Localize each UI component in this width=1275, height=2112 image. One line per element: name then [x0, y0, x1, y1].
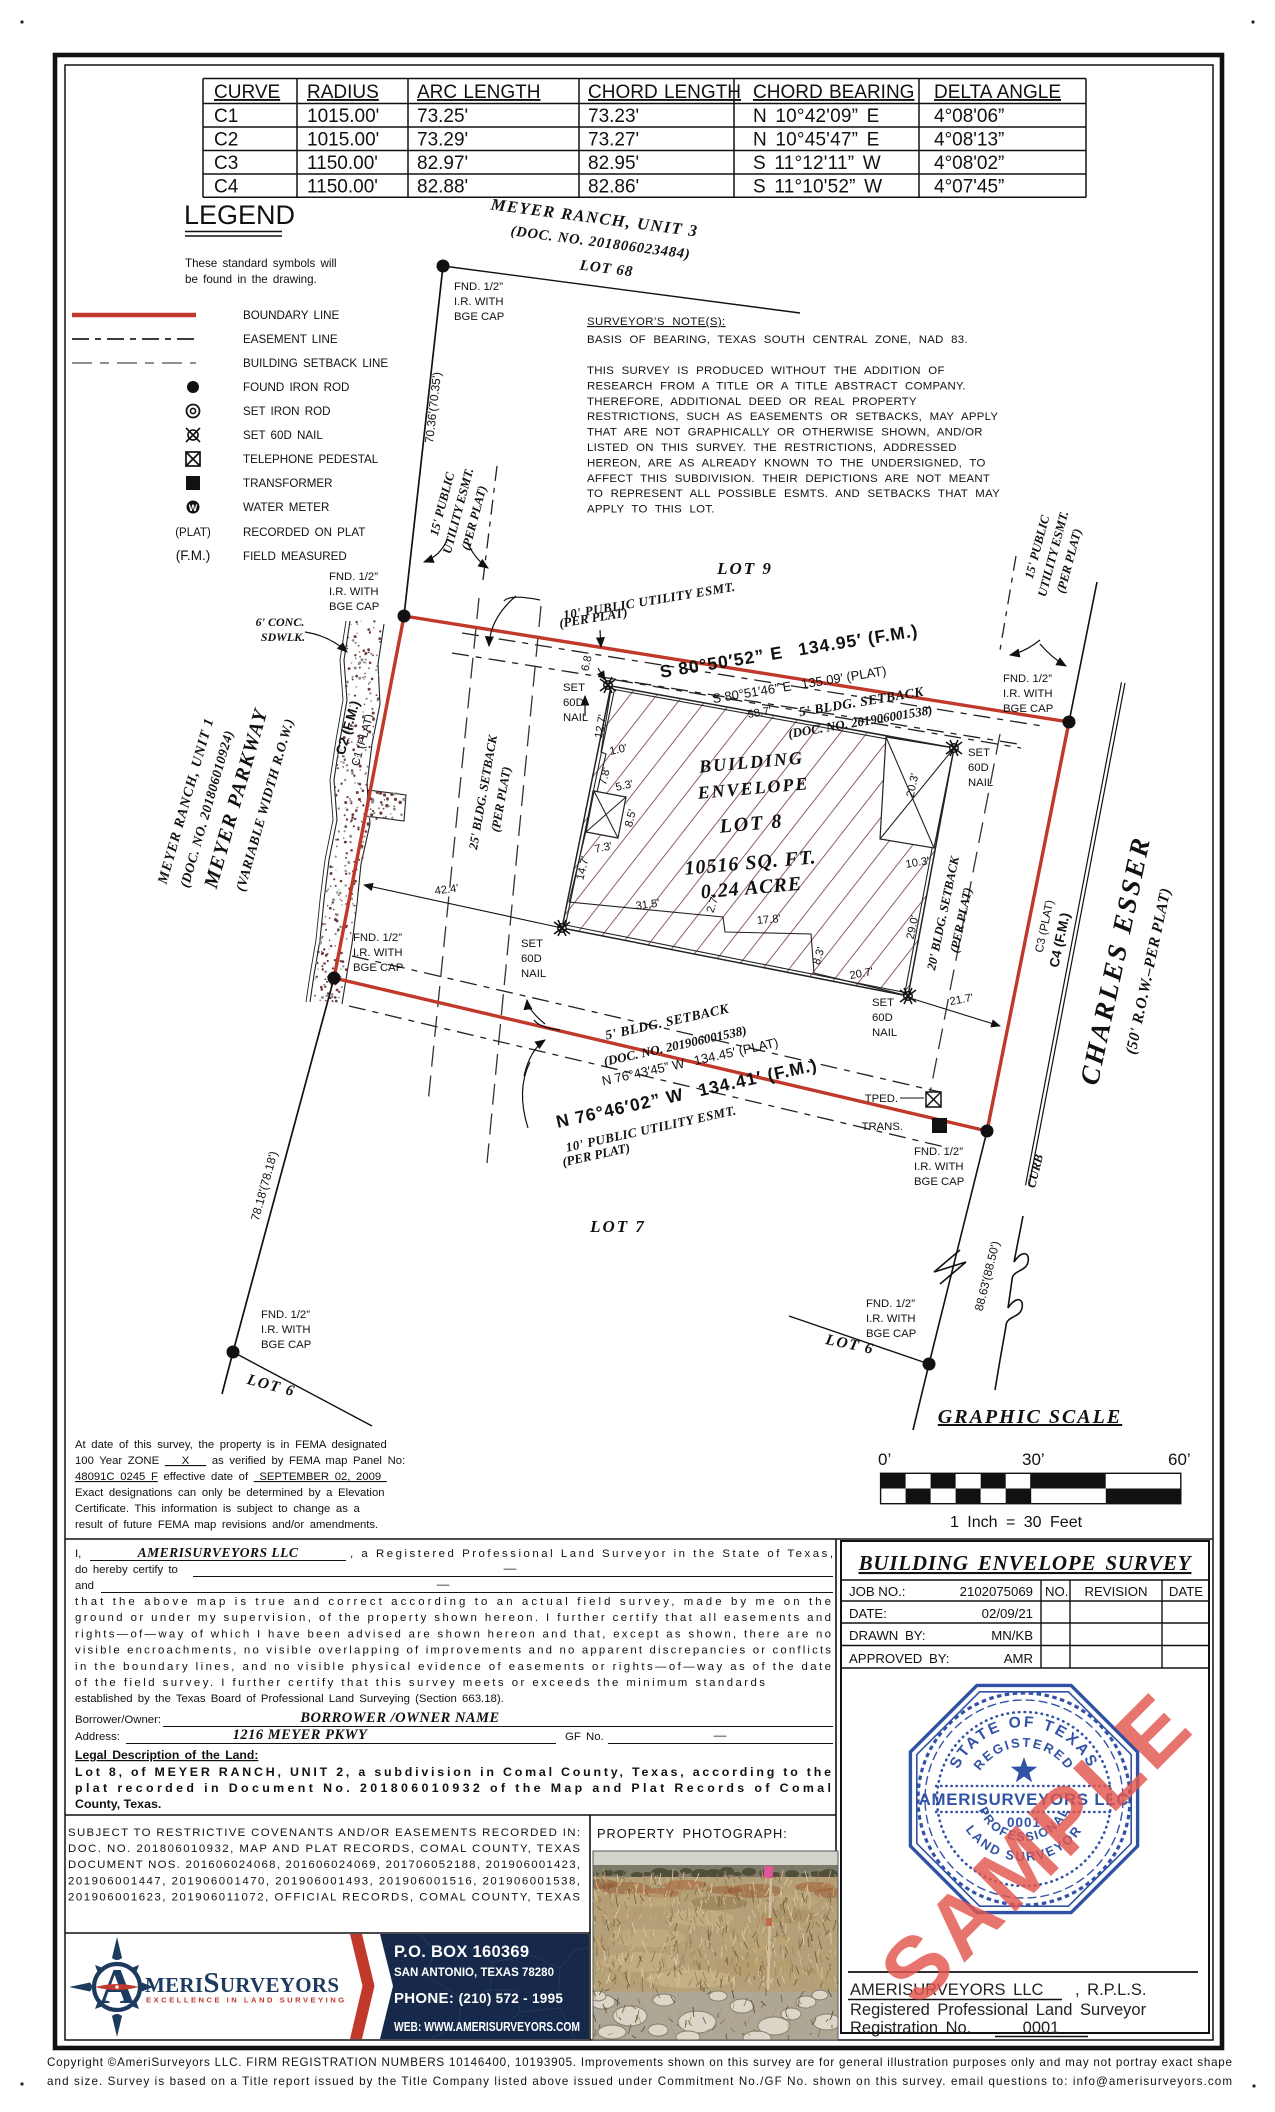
svg-text:I.R. WITH: I.R. WITH [261, 1324, 311, 1336]
svg-text:TELEPHONE PEDESTAL: TELEPHONE PEDESTAL [243, 453, 379, 466]
svg-text:1150.00': 1150.00' [307, 153, 378, 174]
svg-text:0’: 0’ [878, 1450, 891, 1469]
svg-text:plat recorded in Document No.: plat recorded in Document No. 2018060109… [75, 1781, 831, 1795]
svg-text:BUILDING SETBACK LINE: BUILDING SETBACK LINE [243, 357, 388, 370]
svg-text:BGE CAP: BGE CAP [866, 1328, 916, 1340]
svg-text:201906001623, 201906011072, OF: 201906001623, 201906011072, OFFICIAL REC… [68, 1891, 580, 1903]
svg-text:NAIL: NAIL [872, 1027, 897, 1039]
svg-text:DATE:: DATE: [849, 1606, 887, 1621]
svg-text:and: and [75, 1580, 94, 1592]
svg-text:I.R. WITH: I.R. WITH [353, 947, 403, 959]
svg-text:Legal Description of the Land:: Legal Description of the Land: [75, 1748, 258, 1762]
svg-text:N 10°45'47” E: N 10°45'47” E [753, 130, 880, 151]
svg-text:I.R. WITH: I.R. WITH [866, 1313, 916, 1325]
svg-text:SET: SET [872, 997, 894, 1009]
svg-text:1150.00': 1150.00' [307, 177, 378, 198]
svg-text:CHORD BEARING: CHORD BEARING [753, 82, 914, 103]
svg-text:ARC LENGTH: ARC LENGTH [417, 82, 540, 103]
svg-text:BGE CAP: BGE CAP [329, 601, 379, 613]
svg-text:County, Texas.: County, Texas. [75, 1797, 161, 1811]
svg-text:FND. 1/2”: FND. 1/2” [1003, 673, 1052, 685]
svg-text:MN/KB: MN/KB [991, 1628, 1033, 1643]
svg-text:TRANSFORMER: TRANSFORMER [243, 477, 333, 490]
svg-text:––: –– [437, 1579, 450, 1591]
svg-text:TPED.: TPED. [865, 1093, 898, 1105]
svg-text:LEGEND: LEGEND [184, 200, 295, 230]
svg-text:EXCELLENCE IN LAND SURVEYING: EXCELLENCE IN LAND SURVEYING [146, 1996, 347, 2005]
svg-text:I.R. WITH: I.R. WITH [1003, 688, 1053, 700]
svg-text:1015.00': 1015.00' [307, 130, 379, 151]
svg-text:NAIL: NAIL [521, 968, 546, 980]
svg-text:SURVEYOR’S NOTE(S):: SURVEYOR’S NOTE(S): [587, 316, 726, 328]
svg-text:established by the Texas Board: established by the Texas Board of Profes… [75, 1693, 504, 1705]
svg-text:C1: C1 [214, 106, 238, 127]
svg-text:W: W [189, 503, 198, 513]
svg-text:60D: 60D [563, 697, 584, 709]
svg-text:Exact designations can only be: Exact designations can only be determine… [75, 1487, 385, 1499]
svg-text:DRAWN BY:: DRAWN BY: [849, 1628, 926, 1643]
svg-text:BGE CAP: BGE CAP [261, 1339, 311, 1351]
svg-text:APPLY TO THIS LOT.: APPLY TO THIS LOT. [587, 504, 715, 516]
svg-text:WATER METER: WATER METER [243, 501, 329, 514]
svg-text:SET: SET [563, 682, 585, 694]
svg-text:THEREFORE, ADDITIONAL DEED OR: THEREFORE, ADDITIONAL DEED OR REAL PROPE… [587, 396, 917, 408]
svg-text:ground or under my supervision: ground or under my supervision, of the p… [75, 1612, 831, 1624]
svg-text:C2: C2 [214, 130, 238, 151]
svg-text:201906001447, 201906001470, 20: 201906001447, 201906001470, 201906001493… [68, 1875, 580, 1887]
svg-text:TO REPRESENT ALL POSSIBLE ESMT: TO REPRESENT ALL POSSIBLE ESMTS. AND SET… [587, 488, 1000, 500]
svg-text:––: –– [714, 1730, 727, 1742]
svg-text:17.8': 17.8' [756, 913, 781, 927]
svg-text:AMR: AMR [1004, 1651, 1033, 1666]
svg-text:S 11°10'52” W: S 11°10'52” W [753, 177, 882, 198]
svg-text:RECORDED ON PLAT: RECORDED ON PLAT [243, 526, 365, 539]
svg-text:visible encroachments, no visi: visible encroachments, no visible overla… [75, 1645, 831, 1657]
svg-text:DOC. NO. 201806010932, MAP AND: DOC. NO. 201806010932, MAP AND PLAT RECO… [68, 1843, 580, 1855]
svg-text:CHORD LENGTH: CHORD LENGTH [588, 82, 741, 103]
svg-text:1 Inch = 30 Feet: 1 Inch = 30 Feet [950, 1514, 1083, 1531]
svg-text:Registered Professional Land S: Registered Professional Land Surveyor [850, 2001, 1147, 2019]
svg-text:02/09/21: 02/09/21 [982, 1606, 1033, 1621]
svg-text:Address:: Address: [75, 1731, 120, 1743]
svg-text:4°08'02”: 4°08'02” [934, 153, 1004, 174]
svg-text:DOCUMENT NOS. 201606024068, 20: DOCUMENT NOS. 201606024068, 201606024069… [68, 1859, 580, 1871]
svg-text:2102075069: 2102075069 [960, 1584, 1033, 1599]
svg-text:Copyright ©AmeriSurveyors LLC.: Copyright ©AmeriSurveyors LLC. FIRM REGI… [47, 2056, 1232, 2069]
svg-text:DATE: DATE [1169, 1584, 1203, 1599]
svg-text:SET: SET [968, 747, 990, 759]
svg-text:SAN ANTONIO, TEXAS 78280: SAN ANTONIO, TEXAS 78280 [394, 1965, 554, 1979]
svg-text:Registration No.: Registration No. [850, 2019, 971, 2037]
svg-text:FND. 1/2”: FND. 1/2” [329, 571, 378, 583]
svg-text:(PLAT): (PLAT) [175, 527, 211, 539]
svg-text:BGE CAP: BGE CAP [1003, 703, 1053, 715]
svg-text:60D: 60D [872, 1012, 893, 1024]
svg-text:FND. 1/2”: FND. 1/2” [454, 281, 503, 293]
svg-text:BORROWER /OWNER NAME: BORROWER /OWNER NAME [299, 1710, 499, 1726]
svg-text:N 10°42'09” E: N 10°42'09” E [753, 106, 880, 127]
svg-text:I.R. WITH: I.R. WITH [454, 296, 504, 308]
svg-text:HEREON, ARE AS ALREADY KNOWN T: HEREON, ARE AS ALREADY KNOWN TO THE UNDE… [587, 457, 986, 469]
svg-text:EASEMENT LINE: EASEMENT LINE [243, 333, 338, 346]
svg-text:82.95': 82.95' [588, 153, 639, 174]
svg-text:BOUNDARY LINE: BOUNDARY LINE [243, 309, 340, 322]
svg-text:73.29': 73.29' [417, 130, 468, 151]
svg-text:82.86': 82.86' [588, 177, 639, 198]
svg-text:FND. 1/2”: FND. 1/2” [914, 1146, 963, 1158]
svg-text:C4: C4 [214, 177, 239, 198]
svg-text:NAIL: NAIL [563, 712, 588, 724]
svg-text:FND. 1/2”: FND. 1/2” [261, 1309, 310, 1321]
svg-text:48091C 0245 F effective date o: 48091C 0245 F effective date of SEPTEMBE… [75, 1471, 387, 1483]
svg-text:PROPERTY PHOTOGRAPH:: PROPERTY PHOTOGRAPH: [597, 1826, 788, 1841]
svg-text:At date of this survey, the pr: At date of this survey, the property is … [75, 1439, 387, 1451]
svg-text:BUILDING ENVELOPE SURVEY: BUILDING ENVELOPE SURVEY [858, 1551, 1193, 1575]
svg-text:GRAPHIC SCALE: GRAPHIC SCALE [938, 1406, 1122, 1428]
svg-text:AFFECT THIS SUBDIVISION. THEIR: AFFECT THIS SUBDIVISION. THEIR DEPICTION… [587, 473, 990, 485]
svg-text:SET: SET [521, 938, 543, 950]
svg-text:THIS SURVEY IS PRODUCED WITHOU: THIS SURVEY IS PRODUCED WITHOUT THE ADDI… [587, 365, 945, 377]
svg-text:REVISION: REVISION [1084, 1584, 1147, 1599]
svg-text:FOUND IRON ROD: FOUND IRON ROD [243, 381, 349, 394]
svg-text:60D: 60D [968, 762, 989, 774]
svg-text:C3: C3 [214, 153, 238, 174]
svg-text:82.97': 82.97' [417, 153, 468, 174]
svg-text:DELTA ANGLE: DELTA ANGLE [934, 82, 1061, 103]
svg-text:These standard symbols will: These standard symbols will [185, 257, 337, 270]
svg-text:and size. Survey is based on a: and size. Survey is based on a Title rep… [47, 2075, 1232, 2088]
svg-text:do hereby certify to: do hereby certify to [75, 1564, 178, 1576]
svg-text:CURVE: CURVE [214, 82, 280, 103]
svg-text:NO.: NO. [1045, 1584, 1068, 1599]
svg-text:73.27': 73.27' [588, 130, 639, 151]
svg-text:WEB: WWW.AMERISURVEYORS.COM: WEB: WWW.AMERISURVEYORS.COM [394, 2019, 580, 2034]
svg-text:Borrower/Owner:: Borrower/Owner: [75, 1714, 161, 1726]
svg-text:THAT ARE NOT GRAPHICALLY OR OT: THAT ARE NOT GRAPHICALLY OR OTHERWISE SH… [587, 427, 983, 439]
svg-text:JOB NO.:: JOB NO.: [849, 1584, 905, 1599]
svg-text:TRANS.: TRANS. [862, 1121, 903, 1133]
svg-text:SET 60D NAIL: SET 60D NAIL [243, 429, 323, 442]
svg-text:FIELD MEASURED: FIELD MEASURED [243, 550, 347, 563]
svg-text:73.23': 73.23' [588, 106, 639, 127]
svg-text:Certificate. This information: Certificate. This information is subject… [75, 1503, 360, 1515]
svg-text:SET IRON ROD: SET IRON ROD [243, 405, 331, 418]
svg-text:I.R. WITH: I.R. WITH [329, 586, 379, 598]
svg-text:4°07'45”: 4°07'45” [934, 177, 1004, 198]
svg-text:RESTRICTIONS, SUCH AS EASEMENT: RESTRICTIONS, SUCH AS EASEMENTS OR SETBA… [587, 411, 998, 423]
svg-text:––: –– [504, 1563, 517, 1575]
svg-text:82.88': 82.88' [417, 177, 468, 198]
svg-text:be found in the drawing.: be found in the drawing. [185, 273, 317, 286]
svg-text:1015.00': 1015.00' [307, 106, 379, 127]
svg-text:, R.P.L.S.: , R.P.L.S. [1075, 1981, 1146, 1999]
svg-text:GF No.: GF No. [565, 1731, 604, 1743]
svg-text:FND. 1/2”: FND. 1/2” [353, 932, 402, 944]
svg-text:result of future FEMA map revi: result of future FEMA map revisions and/… [75, 1519, 378, 1531]
svg-text:73.25': 73.25' [417, 106, 468, 127]
svg-text:(F.M.): (F.M.) [176, 548, 211, 563]
svg-text:1216 MEYER PKWY: 1216 MEYER PKWY [233, 1727, 368, 1743]
svg-text:BGE CAP: BGE CAP [914, 1176, 964, 1188]
svg-text:30’: 30’ [1022, 1450, 1045, 1469]
svg-text:I.R. WITH: I.R. WITH [914, 1161, 964, 1173]
svg-text:LISTED ON THIS SURVEY. THE RES: LISTED ON THIS SURVEY. THE RESTRICTIONS,… [587, 442, 957, 454]
svg-text:4°08'13”: 4°08'13” [934, 130, 1004, 151]
svg-text:SDWLK.: SDWLK. [261, 630, 305, 644]
svg-text:S 11°12'11” W: S 11°12'11” W [753, 153, 881, 174]
svg-text:60D: 60D [521, 953, 542, 965]
svg-text:BASIS OF BEARING, TEXAS SOUTH: BASIS OF BEARING, TEXAS SOUTH CENTRAL ZO… [587, 334, 968, 346]
svg-text:APPROVED BY:: APPROVED BY: [849, 1651, 949, 1666]
svg-text:0001: 0001 [1023, 2019, 1060, 2037]
svg-text:NAIL: NAIL [968, 777, 993, 789]
svg-text:60’: 60’ [1168, 1450, 1191, 1469]
svg-text:6' CONC.: 6' CONC. [256, 615, 305, 629]
svg-text:LOT 9: LOT 9 [716, 559, 773, 578]
svg-text:FND. 1/2”: FND. 1/2” [866, 1298, 915, 1310]
svg-text:I,: I, [75, 1548, 81, 1560]
svg-text:4°08'06”: 4°08'06” [934, 106, 1004, 127]
svg-text:BGE CAP: BGE CAP [454, 311, 504, 323]
svg-text:BGE CAP: BGE CAP [353, 962, 403, 974]
svg-text:AMERISURVEYORS LLC: AMERISURVEYORS LLC [137, 1545, 299, 1560]
svg-text:100 Year ZONE X as verif: 100 Year ZONE X as verified by FEMA map … [75, 1455, 405, 1467]
svg-text:LOT 7: LOT 7 [589, 1217, 646, 1236]
svg-text:RADIUS: RADIUS [307, 82, 379, 103]
svg-text:PHONE: (210) 572 - 1995: PHONE: (210) 572 - 1995 [394, 1990, 563, 2007]
svg-text:P.O. BOX 160369: P.O. BOX 160369 [394, 1943, 529, 1961]
svg-text:RESEARCH FROM A TITLE OR A TIT: RESEARCH FROM A TITLE OR A TITLE ABSTRAC… [587, 380, 966, 392]
